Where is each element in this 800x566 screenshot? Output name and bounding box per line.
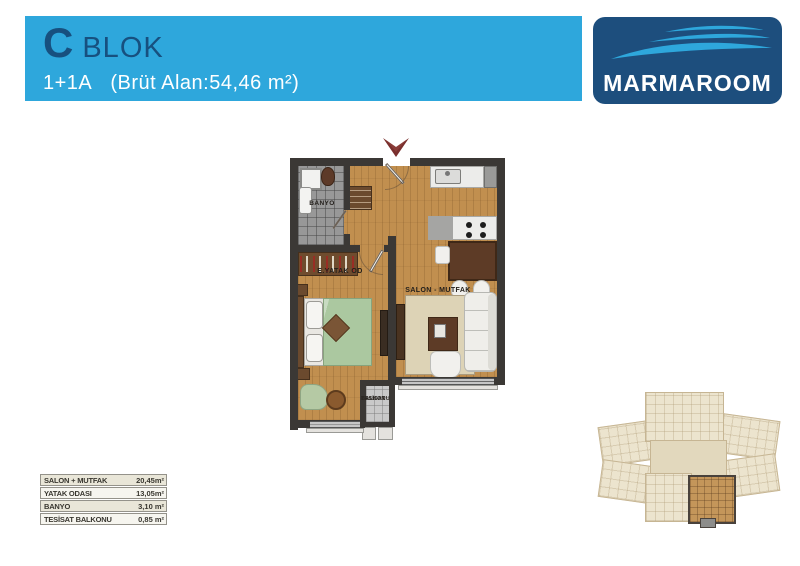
window-bedroom-ledge [306, 428, 364, 433]
key-plan-bottom-left-block [645, 473, 692, 522]
header-bar: C BLOK 1+1A (Brüt Alan:54,46 m²) [25, 16, 582, 101]
logo-text: MARMAROOM [593, 70, 782, 97]
window-bedroom [310, 421, 360, 428]
key-plan-highlight-balcony [700, 518, 716, 528]
marmaroom-logo: MARMAROOM [593, 17, 782, 104]
tv-unit-bedroom [380, 310, 388, 356]
gross-area: (Brüt Alan:54,46 m²) [110, 72, 299, 94]
block-word: BLOK [82, 34, 163, 63]
wall-bathroom-bottom-b [384, 245, 396, 252]
row-label: SALON + MUTFAK [41, 476, 128, 485]
balcony-floor [366, 386, 389, 422]
wall-top-left [290, 158, 383, 166]
bedroom-armchair [300, 384, 328, 410]
bathroom-label: BANYO [302, 200, 342, 208]
wall-left [290, 158, 298, 430]
row-label: TESİSAT BALKONU [41, 515, 128, 524]
block-title: C BLOK [43, 22, 164, 64]
floor-plan: BANYO SALON - MUTFAK E.YATAK OD TESİSAT … [288, 138, 510, 448]
row-label: BANYO [41, 502, 128, 511]
table-row: YATAK ODASI 13,05m² [40, 487, 167, 499]
entry-shelf [348, 186, 372, 210]
row-label: YATAK ODASI [41, 489, 128, 498]
wall-bathroom-right-a [344, 166, 350, 210]
unit-code: 1+1A [43, 72, 92, 94]
balcony-label-line2: BALKONU [361, 396, 390, 403]
bed-pillow-1 [306, 301, 323, 329]
table-row: BANYO 3,10 m² [40, 500, 167, 512]
row-value: 13,05m² [128, 489, 166, 498]
wall-bathroom-right-b [344, 234, 350, 245]
table-row: TESİSAT BALKONU 0,85 m² [40, 513, 167, 525]
dining-table [448, 241, 497, 281]
nightstand-bottom [296, 368, 310, 380]
balcony-vent-1 [362, 427, 376, 440]
living-kitchen-label: SALON - MUTFAK [395, 287, 481, 295]
row-value: 3,10 m² [128, 502, 166, 511]
coffee-table-items [434, 324, 446, 338]
kitchen-faucet [445, 171, 450, 176]
wall-bedroom-salon [388, 236, 396, 380]
wall-bathroom-bottom-a [290, 245, 360, 252]
bedroom-label: E.YATAK OD [308, 268, 372, 276]
living-armchair [430, 351, 461, 378]
bedroom-round-table [326, 390, 346, 410]
wall-right [497, 158, 505, 385]
toilet [321, 167, 335, 186]
key-plan [598, 385, 778, 528]
key-plan-highlighted-unit [688, 475, 736, 524]
bed-pillow-2 [306, 334, 323, 362]
window-salon-ledge [398, 385, 498, 390]
balcony-wall-right [389, 380, 395, 426]
stove-burners [466, 222, 472, 228]
wall-top-right [410, 158, 505, 166]
block-letter: C [43, 22, 73, 64]
counter-gray-section [428, 216, 453, 240]
dining-chair-left [435, 246, 450, 264]
tv-unit-living [396, 304, 405, 360]
table-row: SALON + MUTFAK 20,45m² [40, 474, 167, 486]
window-salon [402, 378, 494, 385]
sofa-back [488, 294, 496, 370]
area-table: SALON + MUTFAK 20,45m² YATAK ODASI 13,05… [40, 474, 167, 526]
entry-arrow-icon [382, 138, 410, 158]
unit-subtitle: 1+1A (Brüt Alan:54,46 m²) [43, 72, 299, 95]
kitchen-corner-cabinet [484, 166, 497, 188]
row-value: 0,85 m² [128, 515, 166, 524]
balcony-vent-2 [378, 427, 393, 440]
row-value: 20,45m² [128, 476, 166, 485]
logo-swoosh-icon [601, 21, 774, 69]
key-plan-top-block [645, 392, 724, 442]
